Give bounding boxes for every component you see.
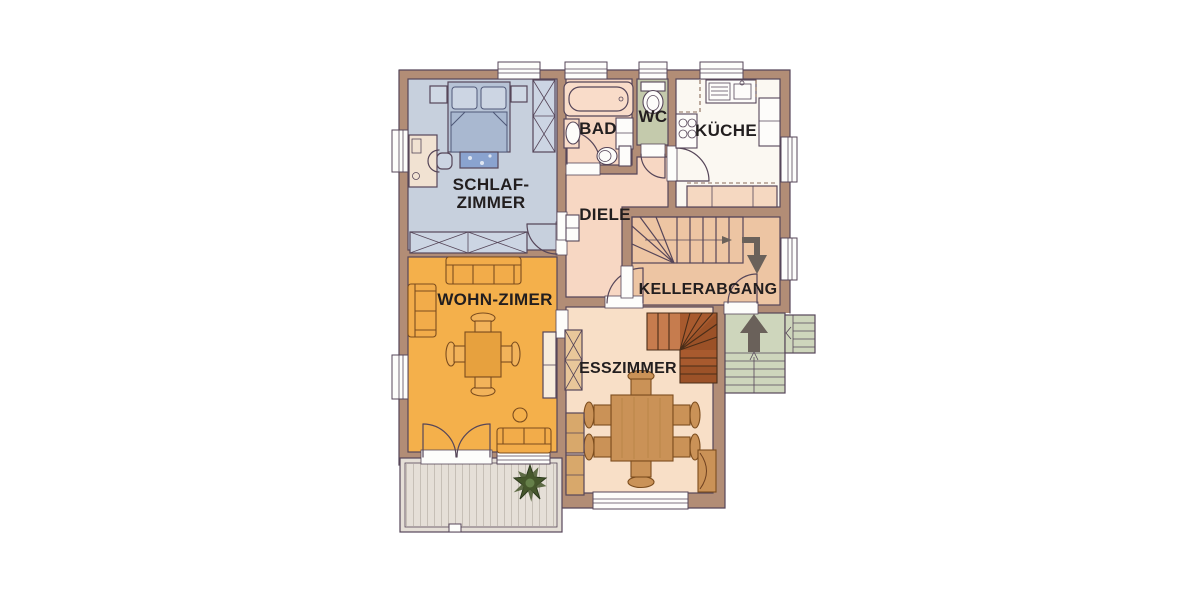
dining-table	[611, 395, 673, 461]
side-table	[513, 408, 527, 422]
label-wc: WC	[639, 107, 668, 126]
chair	[446, 342, 465, 366]
sofa-window	[497, 428, 551, 453]
diele-closet	[566, 215, 579, 241]
kitchen-sink	[706, 80, 756, 103]
chair	[501, 342, 520, 366]
label-wohnzimmer: WOHN-ZIMER	[437, 290, 552, 309]
bedside-rug	[460, 152, 498, 168]
chair	[471, 377, 495, 396]
window	[781, 238, 797, 280]
chair	[628, 461, 654, 488]
window	[565, 62, 607, 79]
bath-sink	[564, 119, 580, 148]
kitchen-counter	[759, 98, 780, 146]
label-kueche: KÜCHE	[695, 121, 757, 140]
sofa-small	[408, 284, 436, 337]
window	[392, 130, 408, 172]
label-kellerabgang: KELLERABGANG	[639, 281, 778, 298]
label-diele: DIELE	[579, 205, 631, 224]
floor-plan: SCHLAF- ZIMMER BAD WC KÜCHE DIELE KELLER…	[0, 0, 1200, 600]
bed	[448, 82, 510, 152]
floor-plan-page: SCHLAF- ZIMMER BAD WC KÜCHE DIELE KELLER…	[0, 0, 1200, 600]
desk	[409, 135, 437, 187]
window	[781, 137, 797, 182]
kitchen-bench	[687, 183, 777, 207]
corner-cabinet	[698, 450, 716, 492]
living-cabinet	[543, 332, 556, 398]
window	[700, 62, 743, 79]
label-bad: BAD	[579, 119, 617, 138]
chair	[471, 313, 495, 332]
terrace-gate	[449, 524, 461, 532]
sofa-large	[446, 257, 521, 284]
label-esszimmer: ESSZIMMER	[579, 360, 677, 377]
label-schlafzimmer-1: SCHLAF-	[453, 175, 530, 194]
label-schlafzimmer-2: ZIMMER	[457, 193, 526, 212]
chair	[584, 402, 611, 428]
nightstand	[430, 86, 447, 103]
sideboard	[566, 455, 584, 495]
coffee-table	[465, 332, 501, 377]
nightstand	[511, 86, 527, 102]
opening-kellerabgang	[621, 266, 633, 298]
window	[593, 492, 688, 509]
sideboard	[566, 413, 584, 453]
window	[639, 62, 667, 79]
stove	[676, 114, 697, 148]
chair	[673, 402, 700, 428]
chair	[673, 434, 700, 460]
window	[392, 355, 408, 399]
terrace	[400, 458, 562, 532]
bathtub	[564, 82, 633, 116]
wardrobe	[533, 80, 555, 152]
closet-band	[410, 232, 527, 253]
chair	[584, 434, 611, 460]
bath-cabinet	[616, 118, 633, 149]
window	[498, 62, 540, 79]
